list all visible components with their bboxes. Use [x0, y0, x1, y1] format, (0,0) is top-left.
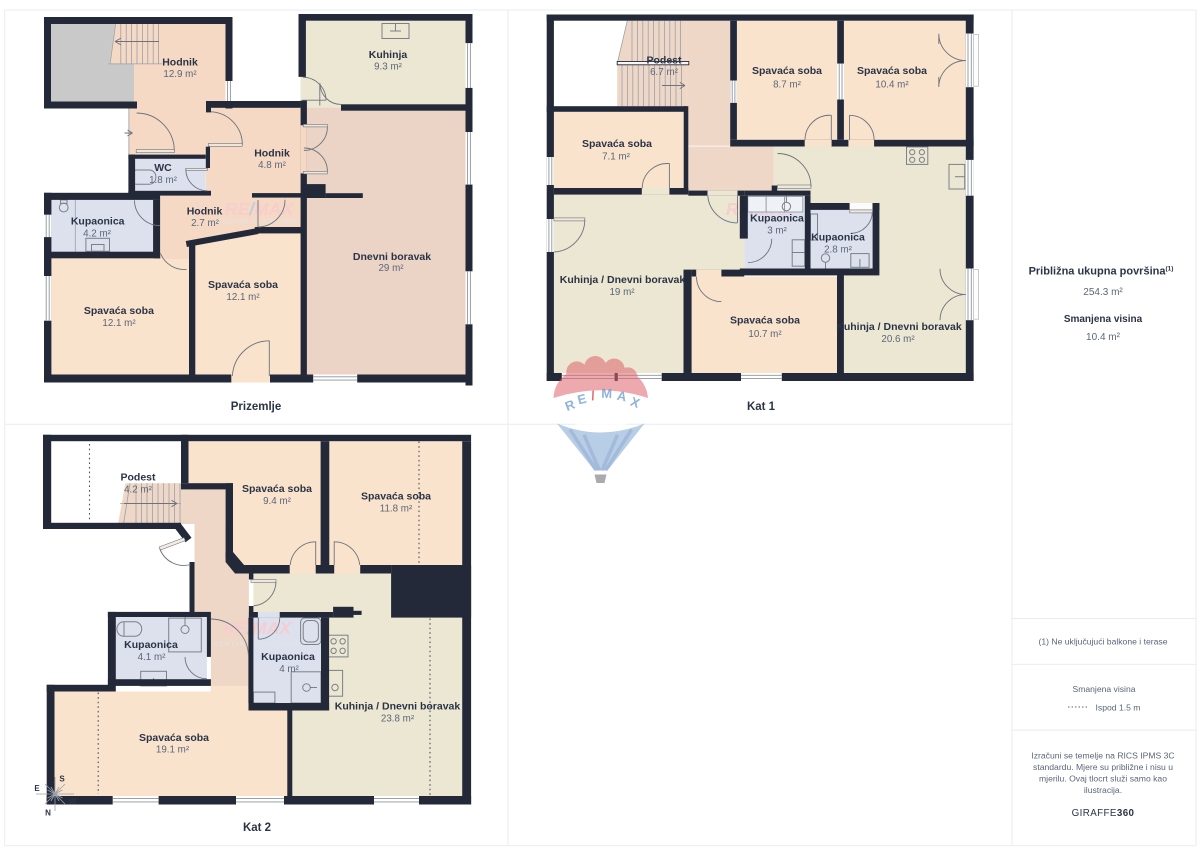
svg-text:(1) Ne uključujući balkone i t: (1) Ne uključujući balkone i terase: [1039, 637, 1168, 647]
svg-text:M: M: [601, 386, 612, 401]
svg-text:Spavaća soba: Spavaća soba: [361, 491, 431, 503]
svg-text:ilustracija.: ilustracija.: [1084, 785, 1122, 795]
svg-text:Kat 2: Kat 2: [243, 822, 271, 834]
svg-text:standardu. Mjere su približne: standardu. Mjere su približne i nisu u: [1033, 762, 1173, 772]
svg-text:12.1 m²: 12.1 m²: [226, 292, 260, 303]
svg-text:23.8 m²: 23.8 m²: [381, 714, 415, 725]
svg-text:7.1 m²: 7.1 m²: [602, 152, 631, 163]
svg-text:Smanjena visina: Smanjena visina: [1072, 684, 1135, 694]
svg-text:mjerilu. Ovaj tlocrt služi sam: mjerilu. Ovaj tlocrt služi samo kao: [1039, 774, 1167, 784]
svg-text:19 m²: 19 m²: [609, 287, 635, 298]
svg-text:9.3 m²: 9.3 m²: [374, 62, 403, 73]
svg-text:Prizemlje: Prizemlje: [231, 401, 282, 413]
svg-text:10.7 m²: 10.7 m²: [748, 329, 782, 340]
svg-text:GIRAFFE360: GIRAFFE360: [1072, 808, 1135, 819]
svg-text:Spavaća soba: Spavaća soba: [857, 65, 927, 77]
svg-text:Kupaonica: Kupaonica: [811, 232, 865, 244]
svg-text:Hodnik: Hodnik: [187, 206, 223, 218]
svg-text:12.1 m²: 12.1 m²: [102, 318, 136, 329]
svg-text:Spavaća soba: Spavaća soba: [139, 732, 209, 744]
svg-text:19.1 m²: 19.1 m²: [156, 745, 190, 756]
svg-text:Podest: Podest: [646, 55, 682, 67]
svg-text:4.2 m²: 4.2 m²: [83, 229, 112, 240]
svg-text:4 m²: 4 m²: [279, 664, 299, 675]
svg-text:Spavaća soba: Spavaća soba: [582, 138, 652, 150]
svg-text:Spavaća soba: Spavaća soba: [242, 483, 312, 495]
svg-text:4.8 m²: 4.8 m²: [258, 160, 287, 171]
svg-text:3 m²: 3 m²: [767, 226, 787, 237]
svg-text:CENTAR NEKRETNINA: CENTAR NEKRETNINA: [214, 641, 300, 648]
svg-text:10.4 m²: 10.4 m²: [1086, 332, 1121, 343]
svg-text:Kupaonica: Kupaonica: [750, 213, 804, 225]
svg-text:Kuhinja / Dnevni boravak: Kuhinja / Dnevni boravak: [335, 701, 461, 713]
svg-text:12.9 m²: 12.9 m²: [163, 69, 197, 80]
svg-text:Hodnik: Hodnik: [162, 57, 198, 69]
svg-text:10.4 m²: 10.4 m²: [875, 80, 909, 91]
svg-text:254.3 m²: 254.3 m²: [1083, 287, 1123, 298]
svg-text:E: E: [34, 784, 40, 793]
svg-text:29 m²: 29 m²: [378, 263, 404, 274]
svg-text:Kupaonica: Kupaonica: [71, 216, 125, 228]
svg-text:11.8 m²: 11.8 m²: [380, 504, 413, 515]
svg-text:Spavaća soba: Spavaća soba: [208, 279, 278, 291]
svg-text:20.6 m²: 20.6 m²: [881, 334, 915, 345]
svg-text:N: N: [45, 809, 51, 818]
svg-text:4.2 m²: 4.2 m²: [124, 485, 153, 496]
svg-text:WC: WC: [154, 162, 172, 174]
svg-text:Kupaonica: Kupaonica: [261, 651, 315, 663]
svg-text:Kuhinja: Kuhinja: [369, 49, 408, 61]
svg-text:Podest: Podest: [120, 472, 156, 484]
svg-text:Smanjena visina: Smanjena visina: [1064, 314, 1143, 325]
svg-text:Kuhinja / Dnevni boravak: Kuhinja / Dnevni boravak: [560, 274, 686, 286]
svg-text:Kupaonica: Kupaonica: [124, 639, 178, 651]
svg-text:Ispod 1.5 m: Ispod 1.5 m: [1096, 703, 1141, 713]
svg-text:S: S: [59, 775, 65, 784]
svg-text:6.7 m²: 6.7 m²: [650, 67, 679, 78]
svg-text:Hodnik: Hodnik: [254, 148, 290, 160]
svg-text:RE/MAX: RE/MAX: [223, 618, 292, 638]
svg-text:Spavaća soba: Spavaća soba: [84, 305, 154, 317]
svg-text:Kuhinja / Dnevni boravak: Kuhinja / Dnevni boravak: [836, 321, 962, 333]
svg-text:Spavaća soba: Spavaća soba: [730, 315, 800, 327]
svg-text:RE/MAX: RE/MAX: [225, 199, 294, 219]
svg-text:1.8 m²: 1.8 m²: [149, 175, 178, 186]
svg-text:8.7 m²: 8.7 m²: [773, 80, 802, 91]
svg-text:W: W: [69, 798, 77, 807]
svg-text:2.7 m²: 2.7 m²: [191, 218, 220, 229]
svg-text:Dnevni boravak: Dnevni boravak: [353, 251, 431, 263]
svg-text:4.1 m²: 4.1 m²: [138, 652, 167, 663]
svg-text:Kat 1: Kat 1: [747, 401, 776, 413]
svg-text:2.8 m²: 2.8 m²: [824, 245, 853, 256]
svg-text:Izračuni se temelje na RICS IP: Izračuni se temelje na RICS IPMS 3C: [1031, 751, 1174, 761]
svg-text:Približna ukupna površina(1): Približna ukupna površina(1): [1029, 266, 1174, 278]
svg-text:CENTAR NEKRETNINA: CENTAR NEKRETNINA: [217, 219, 303, 226]
svg-text:Spavaća soba: Spavaća soba: [752, 65, 822, 77]
svg-text:9.4 m²: 9.4 m²: [263, 496, 292, 507]
